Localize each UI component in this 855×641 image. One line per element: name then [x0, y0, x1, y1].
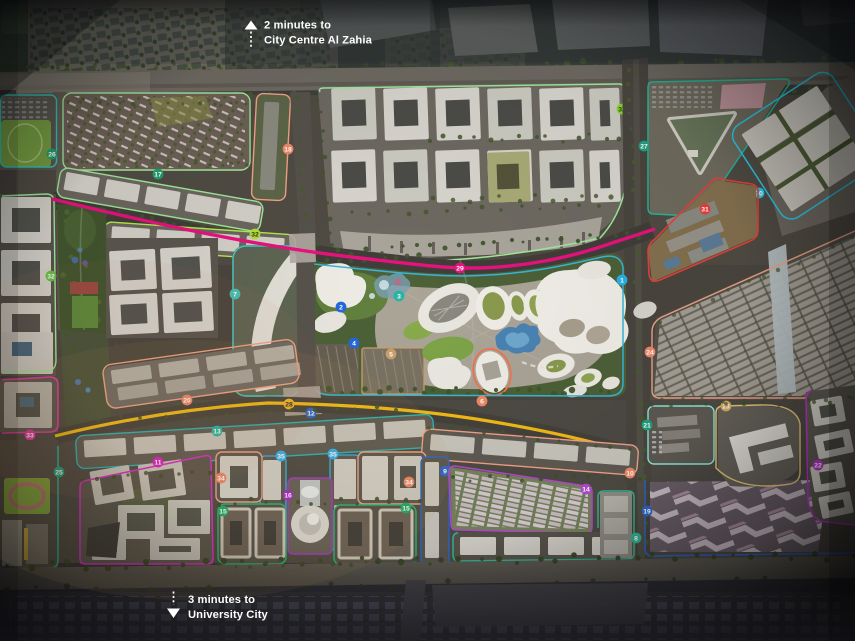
svg-text:3 minutes to: 3 minutes to	[188, 594, 255, 606]
svg-text:University City: University City	[188, 609, 269, 621]
svg-text:2 minutes to: 2 minutes to	[264, 20, 331, 32]
svg-text:City Centre Al Zahia: City Centre Al Zahia	[264, 35, 373, 47]
